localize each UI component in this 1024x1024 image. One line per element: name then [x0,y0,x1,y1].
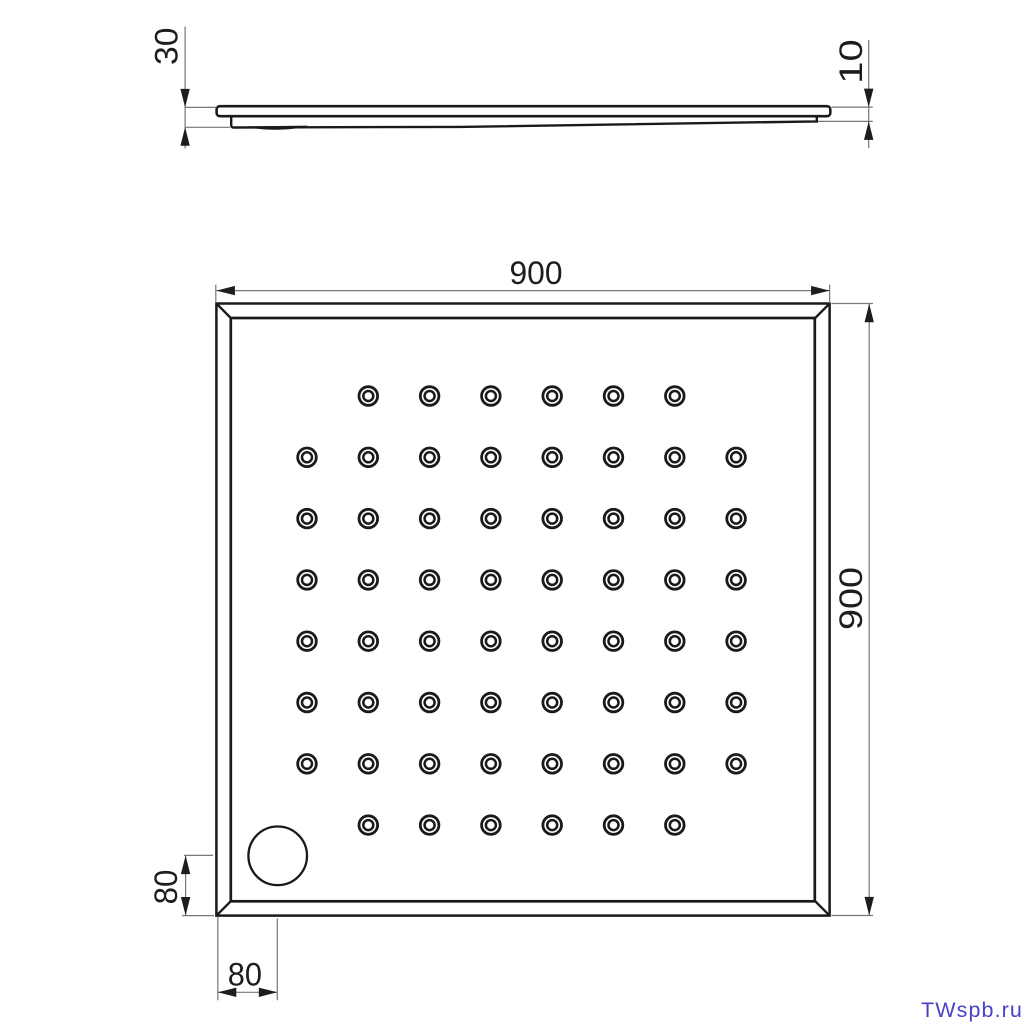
svg-text:900: 900 [510,255,563,291]
svg-text:80: 80 [228,957,262,993]
svg-text:10: 10 [833,39,869,84]
svg-text:80: 80 [148,870,184,905]
svg-text:30: 30 [149,27,185,64]
svg-text:900: 900 [833,567,869,630]
svg-text:TWspb.ru: TWspb.ru [921,998,1023,1022]
